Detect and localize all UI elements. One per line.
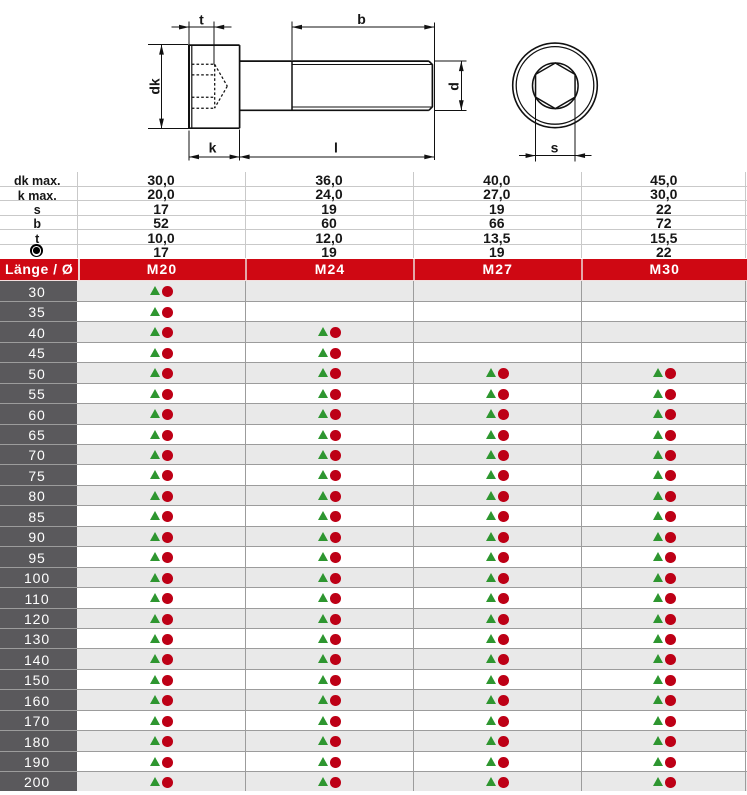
svg-text:k: k bbox=[209, 139, 217, 155]
svg-text:b: b bbox=[357, 11, 366, 27]
svg-text:l: l bbox=[334, 139, 338, 155]
svg-text:t: t bbox=[199, 12, 204, 28]
svg-text:s: s bbox=[551, 140, 559, 156]
svg-text:d: d bbox=[445, 82, 461, 91]
svg-text:dk: dk bbox=[146, 78, 162, 95]
